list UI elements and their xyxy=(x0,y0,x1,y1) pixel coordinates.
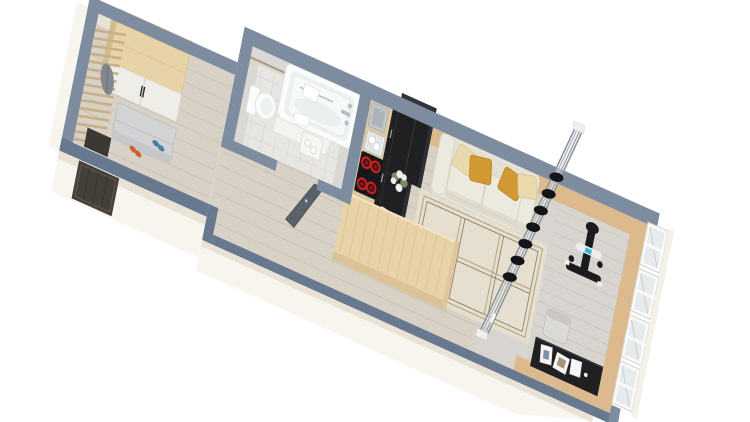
floorplan-render xyxy=(0,0,750,422)
pillow-mustard-left xyxy=(469,155,492,186)
picture-frame xyxy=(570,359,582,378)
pillow-cream-right xyxy=(518,173,537,199)
